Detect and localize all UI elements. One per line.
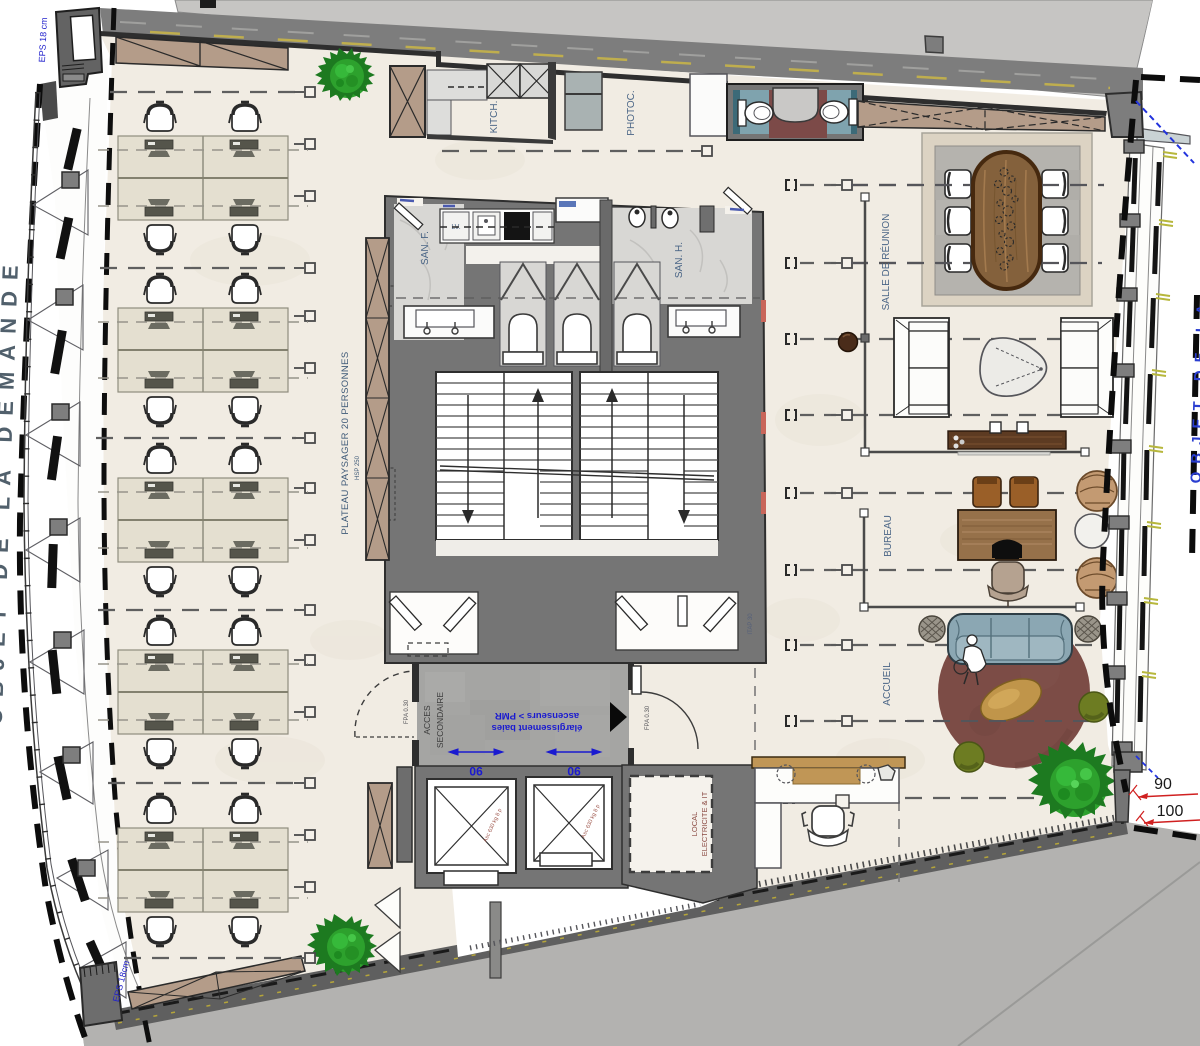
svg-text:PHOTOC.: PHOTOC.	[626, 90, 637, 135]
svg-text:ITAP 30: ITAP 30	[748, 613, 754, 635]
svg-text:90: 90	[1154, 776, 1172, 793]
svg-text:90: 90	[567, 764, 581, 778]
svg-text:90: 90	[469, 764, 483, 778]
svg-text:BUREAU: BUREAU	[883, 515, 894, 557]
svg-text:FPA 0.30: FPA 0.30	[404, 699, 410, 724]
svg-text:HSP 250: HSP 250	[355, 455, 361, 480]
svg-text:SALLE DE RÉUNION: SALLE DE RÉUNION	[879, 214, 892, 311]
svg-text:PLATEAU PAYSAGER 20 PERSONNES: PLATEAU PAYSAGER 20 PERSONNES	[340, 351, 351, 534]
svg-text:ascenseurs > PMR: ascenseurs > PMR	[495, 710, 579, 721]
svg-text:ACCUEIL: ACCUEIL	[882, 662, 893, 706]
svg-text:SECONDAIRE: SECONDAIRE	[435, 692, 445, 749]
svg-text:élargissement baies: élargissement baies	[492, 722, 583, 733]
svg-text:SAN. H.: SAN. H.	[674, 242, 685, 278]
svg-text:KITCH.: KITCH.	[489, 101, 500, 134]
svg-text:ACCES: ACCES	[422, 705, 432, 735]
svg-text:100: 100	[1157, 803, 1184, 820]
svg-text:LOCAL: LOCAL	[690, 812, 699, 837]
svg-text:FPA 0.30: FPA 0.30	[645, 705, 651, 730]
svg-text:SAN. F.: SAN. F.	[420, 231, 431, 265]
svg-text:ELECTRICITE & IT: ELECTRICITE & IT	[700, 791, 709, 856]
